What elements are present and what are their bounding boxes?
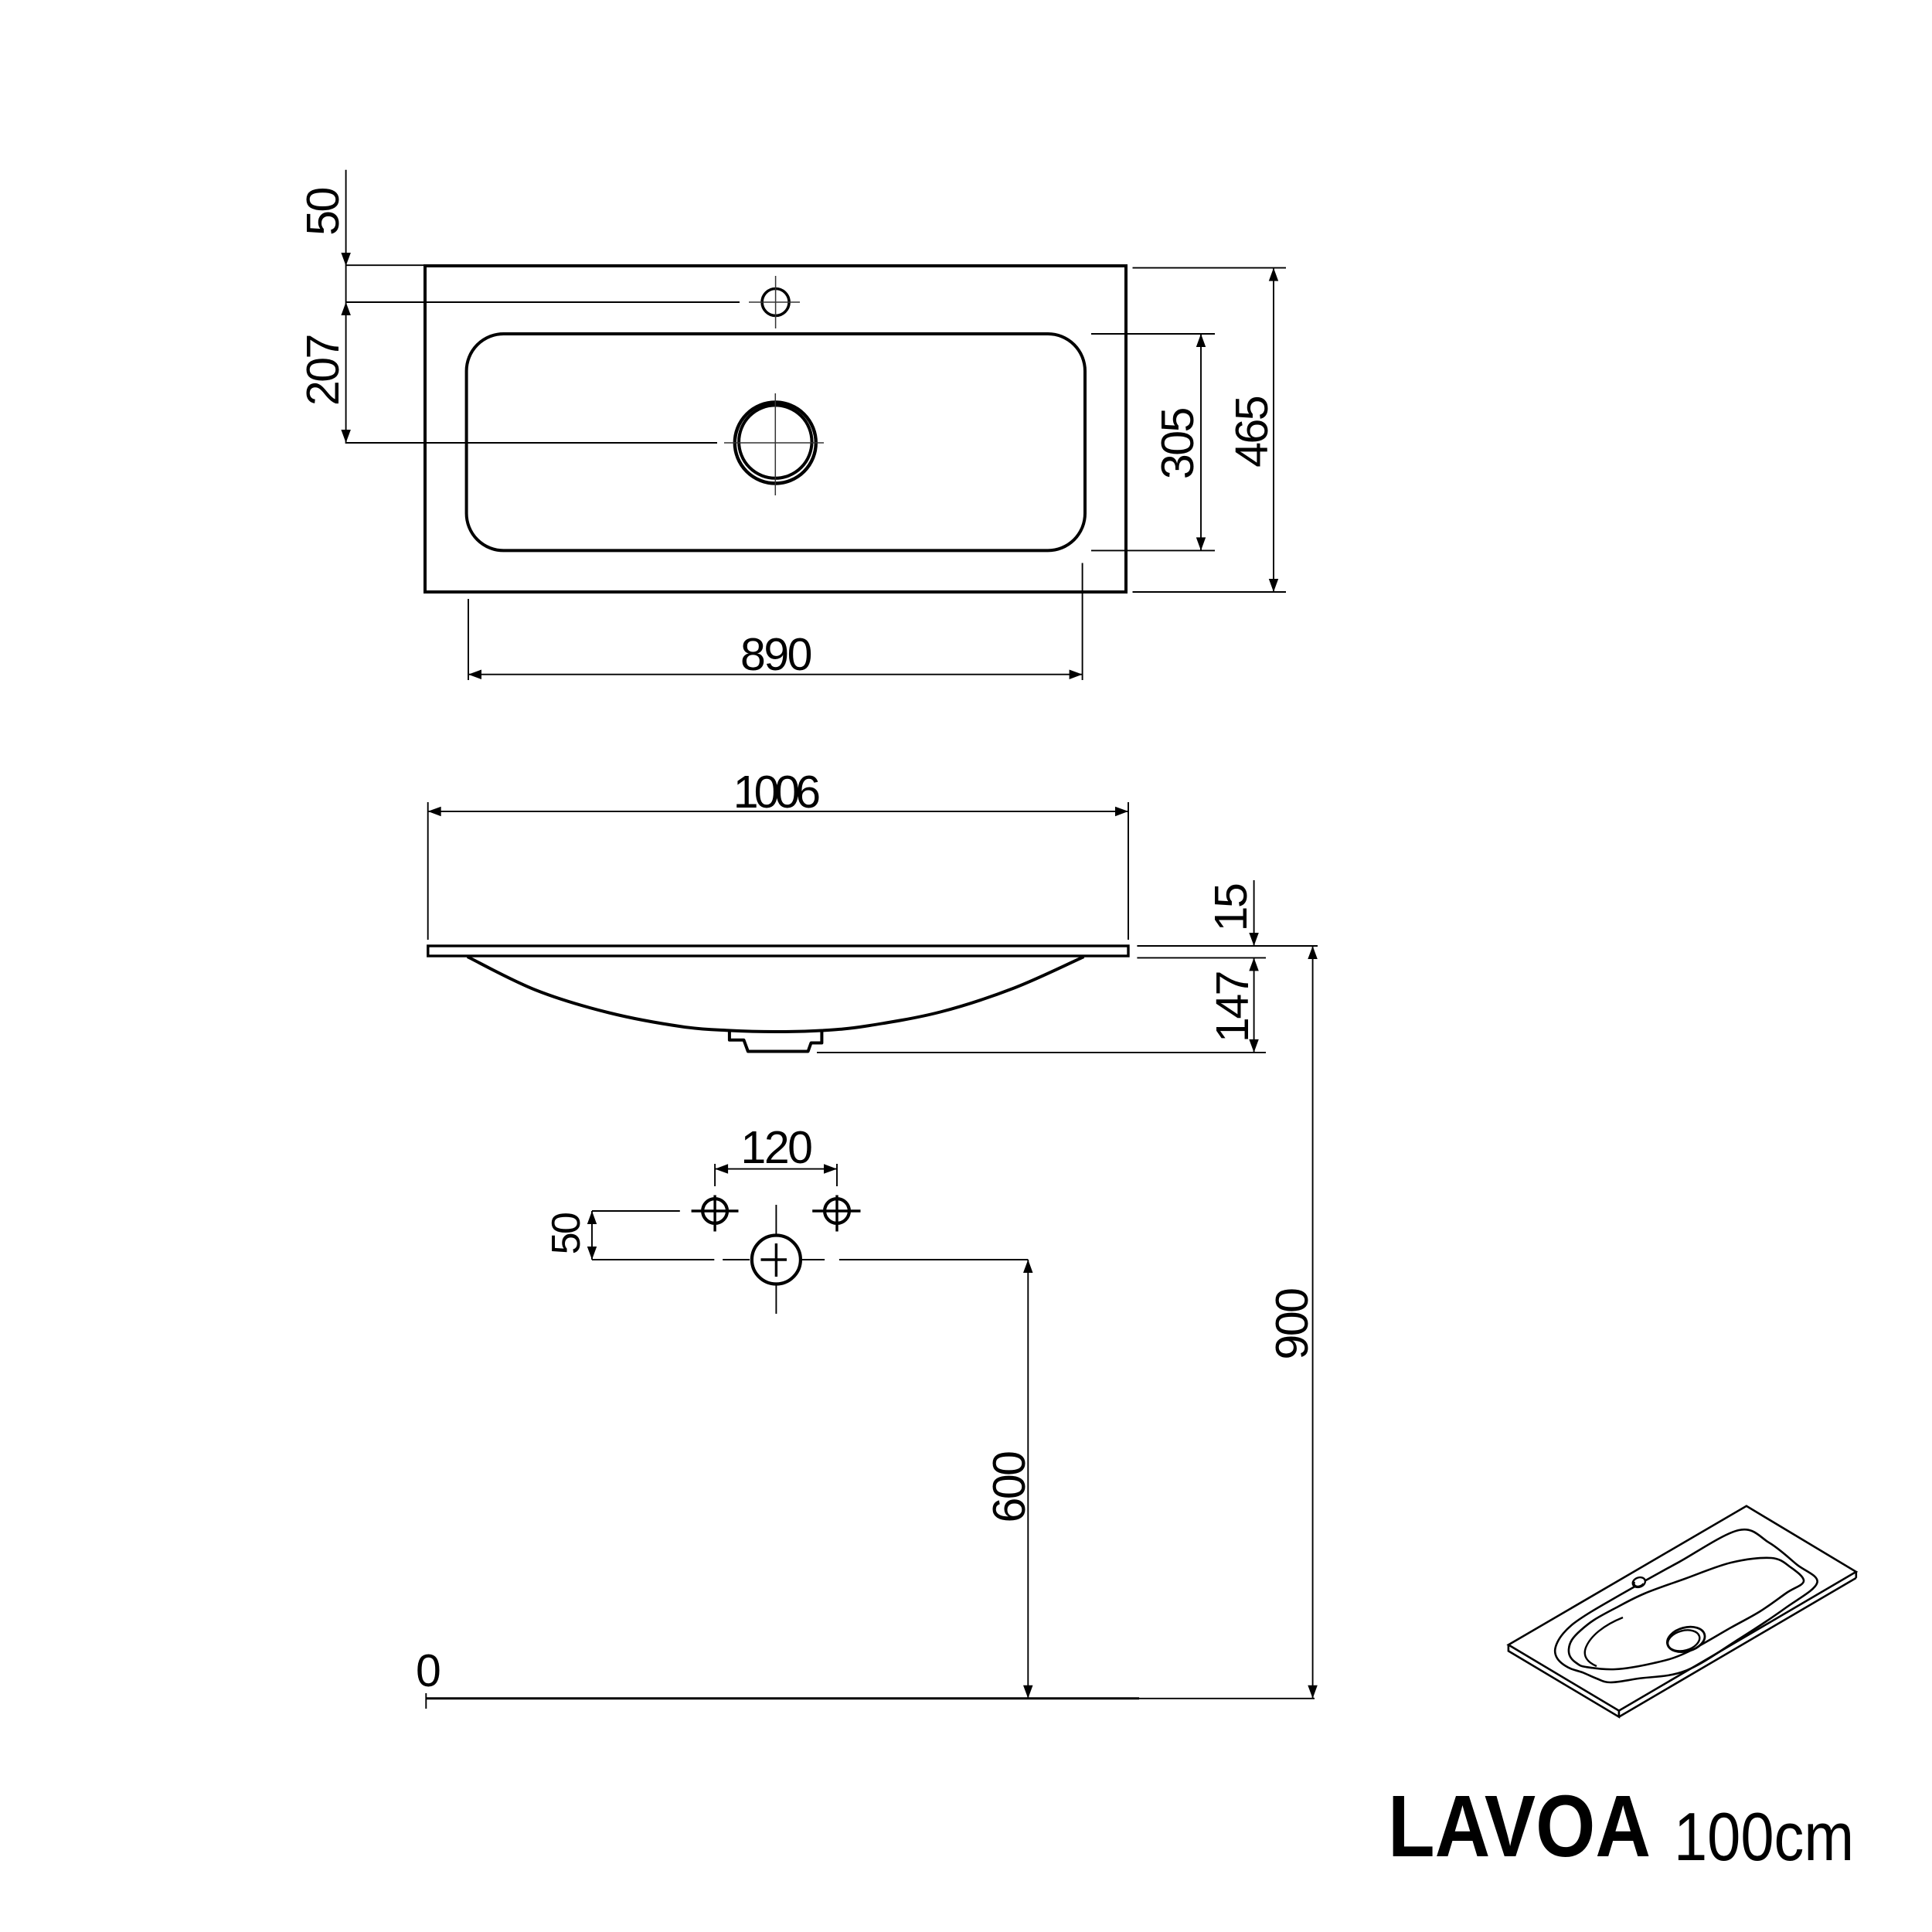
svg-text:890: 890 xyxy=(740,629,811,680)
svg-text:900: 900 xyxy=(1267,1289,1318,1360)
svg-text:50: 50 xyxy=(544,1213,589,1254)
svg-text:120: 120 xyxy=(741,1122,812,1173)
svg-text:50: 50 xyxy=(298,189,349,236)
svg-text:147: 147 xyxy=(1207,972,1258,1043)
svg-text:600: 600 xyxy=(984,1452,1035,1523)
svg-text:1006: 1006 xyxy=(733,767,819,818)
svg-text:465: 465 xyxy=(1226,396,1277,468)
svg-text:100cm: 100cm xyxy=(1674,1798,1854,1875)
svg-text:0: 0 xyxy=(416,1645,440,1696)
svg-text:15: 15 xyxy=(1206,884,1257,931)
svg-text:LAVOA: LAVOA xyxy=(1388,1777,1651,1875)
svg-text:207: 207 xyxy=(298,335,349,406)
svg-text:305: 305 xyxy=(1152,408,1203,479)
